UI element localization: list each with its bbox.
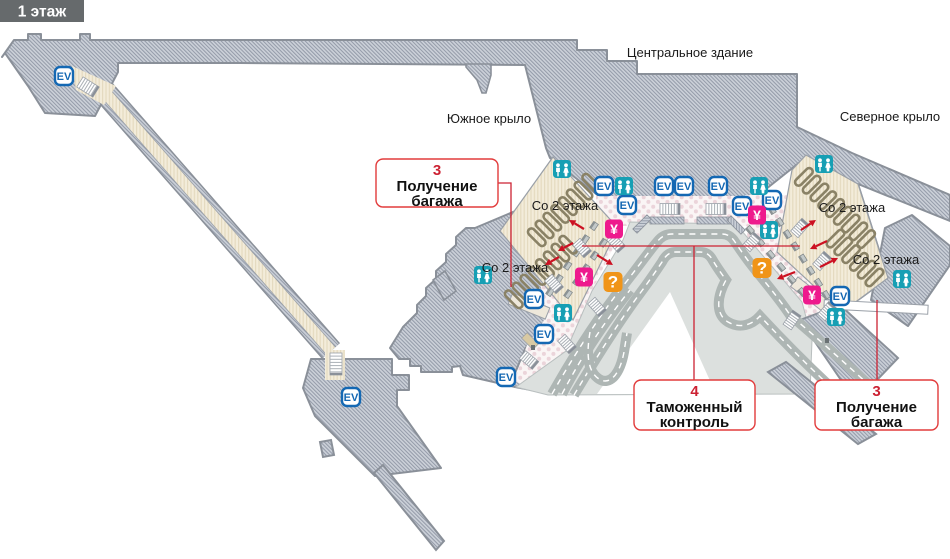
- svg-text:Центральное здание: Центральное здание: [627, 45, 753, 60]
- svg-text:Со 2 этажа: Со 2 этажа: [532, 198, 599, 213]
- svg-text:контроль: контроль: [660, 414, 730, 431]
- svg-text:EV: EV: [537, 329, 552, 341]
- svg-text:Южное крыло: Южное крыло: [447, 111, 531, 126]
- svg-text:Со 2 этажа: Со 2 этажа: [853, 252, 920, 267]
- svg-text:4: 4: [690, 383, 699, 400]
- svg-text:¥: ¥: [610, 221, 618, 237]
- svg-text:EV: EV: [620, 200, 635, 212]
- svg-text:¥: ¥: [808, 287, 816, 303]
- svg-text:¥: ¥: [580, 269, 588, 285]
- svg-text:EV: EV: [527, 294, 542, 306]
- svg-text:Со 2 этажа: Со 2 этажа: [482, 260, 549, 275]
- svg-text:¥: ¥: [753, 207, 761, 223]
- svg-text:EV: EV: [735, 201, 750, 213]
- svg-text:EV: EV: [833, 291, 848, 303]
- svg-text:1 этаж: 1 этаж: [18, 4, 67, 21]
- svg-text:Северное крыло: Северное крыло: [840, 109, 940, 124]
- svg-text:EV: EV: [765, 195, 780, 207]
- svg-text:Со 2 этажа: Со 2 этажа: [819, 200, 886, 215]
- svg-text:EV: EV: [57, 71, 72, 83]
- svg-text:багажа: багажа: [411, 193, 463, 210]
- svg-text:EV: EV: [344, 392, 359, 404]
- svg-text:?: ?: [757, 259, 767, 278]
- svg-text:EV: EV: [657, 181, 672, 193]
- svg-text:багажа: багажа: [851, 414, 903, 431]
- svg-text:?: ?: [608, 273, 618, 292]
- svg-text:3: 3: [433, 162, 441, 179]
- svg-text:EV: EV: [499, 372, 514, 384]
- svg-text:EV: EV: [597, 181, 612, 193]
- svg-text:3: 3: [872, 383, 880, 400]
- svg-text:EV: EV: [711, 181, 726, 193]
- svg-text:EV: EV: [677, 181, 692, 193]
